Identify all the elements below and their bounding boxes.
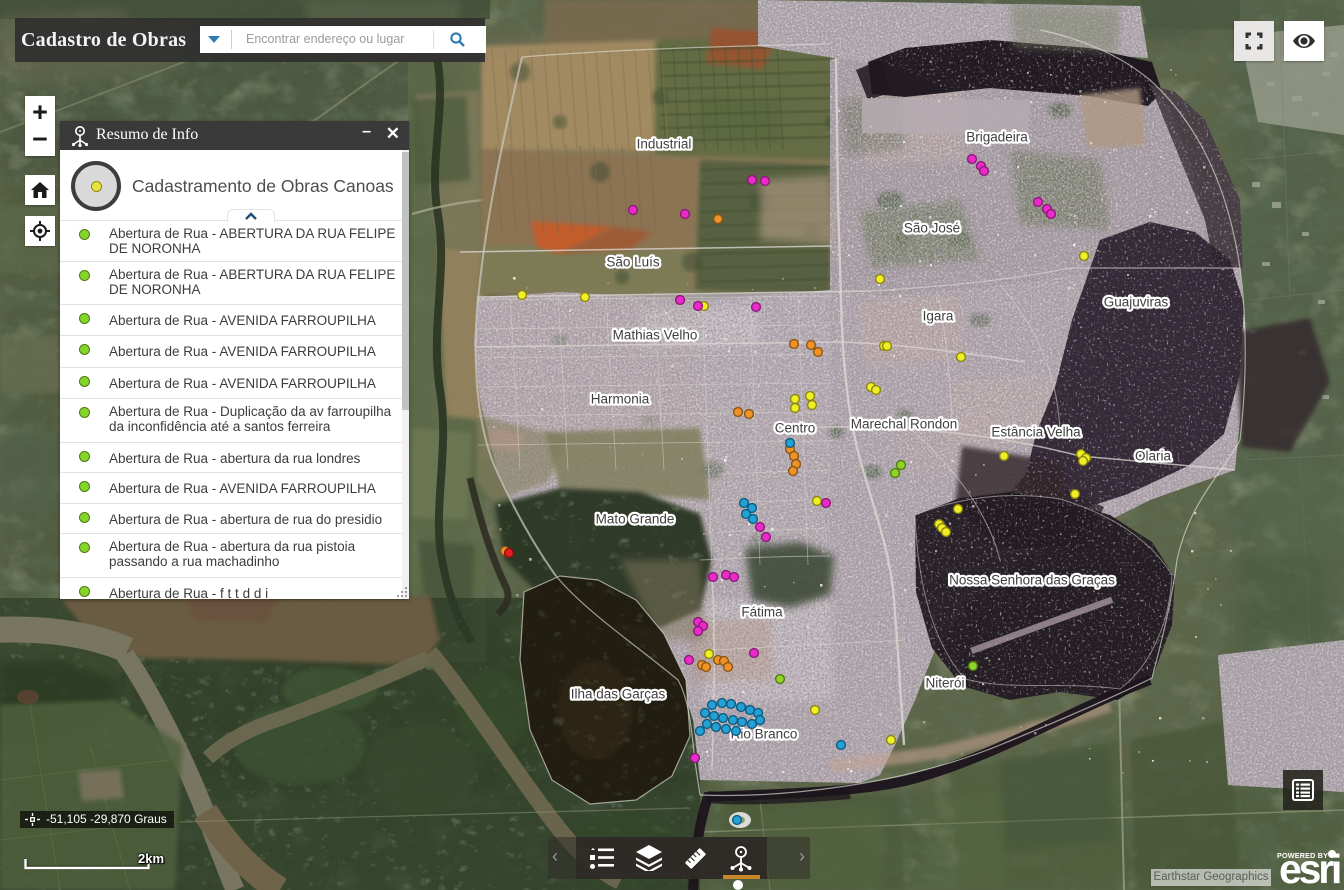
svg-text:Igara: Igara [923, 309, 954, 324]
svg-text:Mathias Velho: Mathias Velho [613, 328, 698, 343]
svg-text:Fátima: Fátima [741, 605, 783, 620]
svg-text:Niterói: Niterói [925, 676, 964, 691]
svg-text:Centro: Centro [775, 421, 816, 436]
svg-text:Mato Grande: Mato Grande [596, 512, 675, 527]
svg-text:São José: São José [904, 221, 960, 236]
svg-text:Rio Branco: Rio Branco [731, 727, 798, 742]
svg-text:Ilha das Garças: Ilha das Garças [571, 687, 666, 702]
svg-text:Harmonia: Harmonia [591, 392, 650, 407]
svg-text:Brigadeira: Brigadeira [966, 130, 1028, 145]
svg-text:Olaria: Olaria [1135, 449, 1172, 464]
svg-text:São Luís: São Luís [606, 255, 660, 270]
svg-text:Marechal Rondon: Marechal Rondon [851, 417, 958, 432]
svg-text:Nossa Senhora das Graças: Nossa Senhora das Graças [949, 573, 1115, 588]
svg-text:Estância Velha: Estância Velha [991, 425, 1081, 440]
svg-text:Guajuviras: Guajuviras [1104, 295, 1169, 310]
svg-text:Industrial: Industrial [637, 137, 692, 152]
